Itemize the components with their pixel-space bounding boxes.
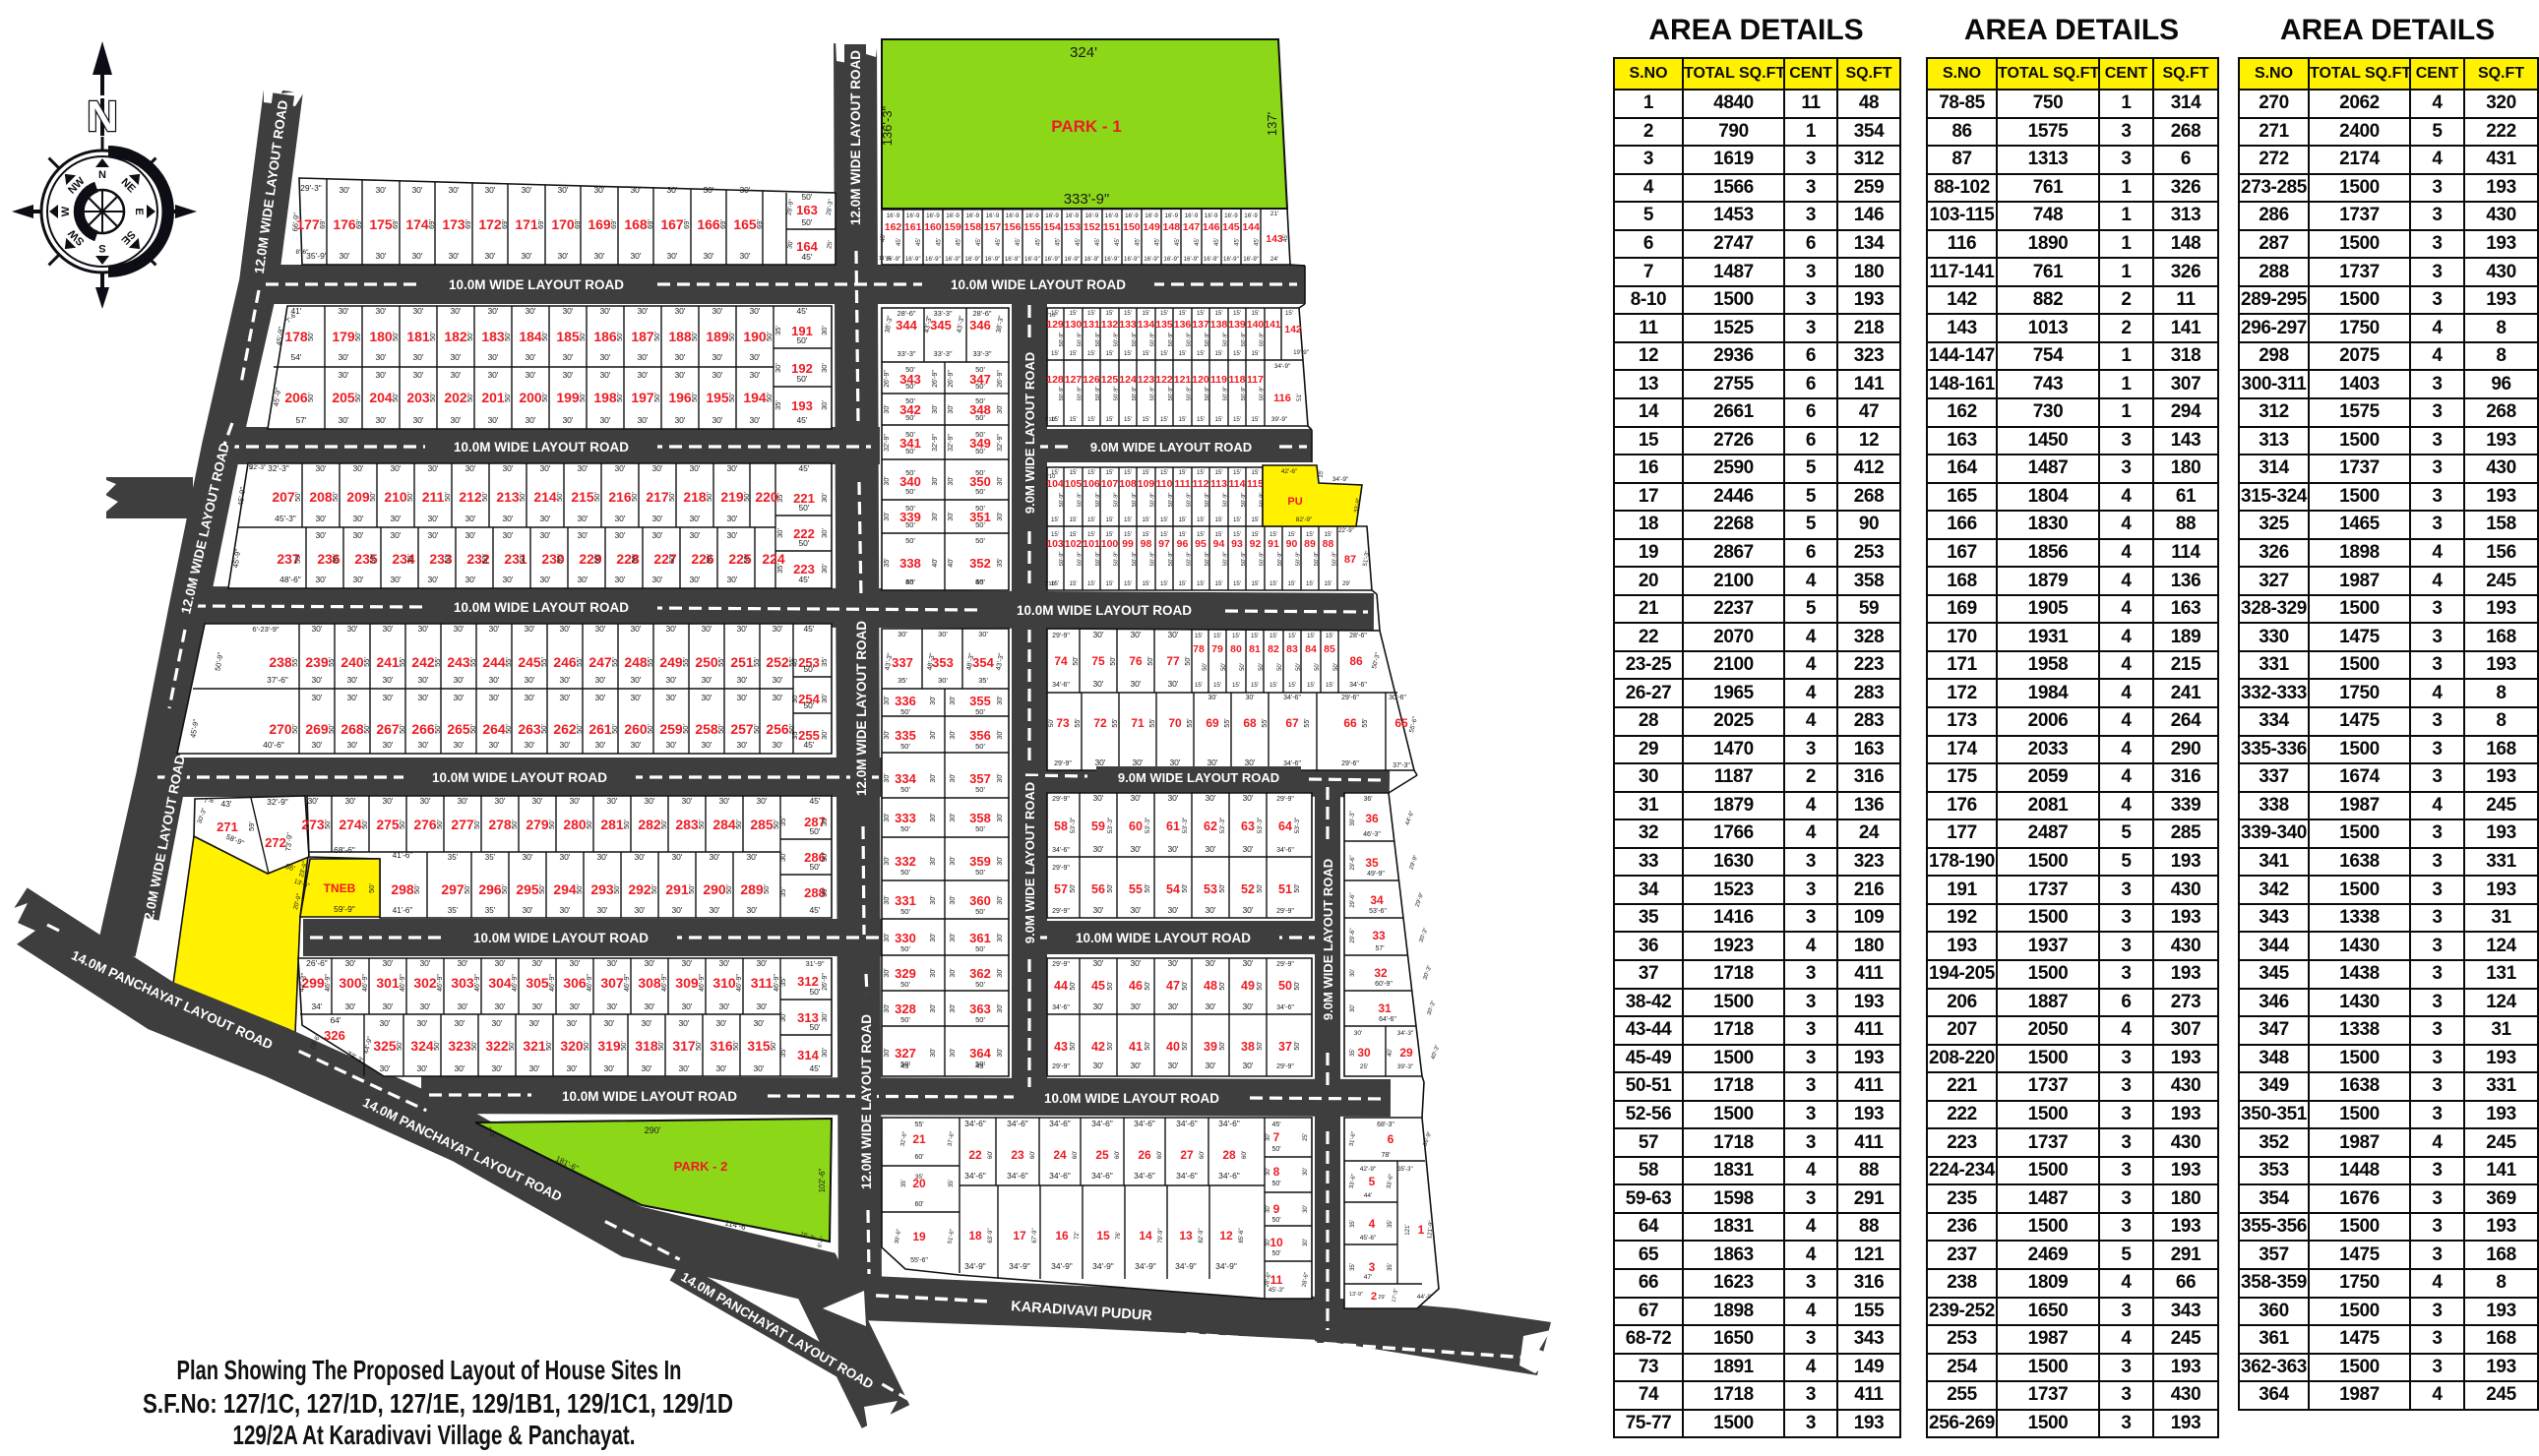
svg-text:112: 112 xyxy=(1193,478,1209,490)
svg-text:50': 50' xyxy=(900,707,910,716)
svg-text:30': 30' xyxy=(665,675,676,685)
svg-text:50': 50' xyxy=(803,700,814,710)
svg-text:59'-9": 59'-9" xyxy=(334,904,355,914)
svg-text:30': 30' xyxy=(457,958,467,968)
svg-text:6'-23'-9": 6'-23'-9" xyxy=(252,625,279,634)
svg-text:30': 30' xyxy=(1092,1001,1103,1011)
svg-text:26'-6": 26'-6" xyxy=(306,958,328,968)
svg-text:15': 15' xyxy=(1124,469,1132,476)
svg-text:279: 279 xyxy=(526,817,549,832)
svg-text:305: 305 xyxy=(526,975,549,991)
svg-text:29'-6": 29'-6" xyxy=(1341,760,1359,767)
svg-text:282: 282 xyxy=(638,817,661,832)
svg-text:69': 69' xyxy=(573,219,582,229)
svg-text:289: 289 xyxy=(740,881,764,897)
svg-text:78': 78' xyxy=(1381,1152,1390,1159)
svg-text:50'-9": 50'-9" xyxy=(1059,387,1065,401)
svg-text:30': 30' xyxy=(1167,905,1178,915)
svg-text:50': 50' xyxy=(331,492,340,502)
svg-text:50': 50' xyxy=(687,884,696,894)
svg-text:9.0M WIDE LAYOUT ROAD: 9.0M WIDE LAYOUT ROAD xyxy=(1118,770,1279,785)
svg-text:75: 75 xyxy=(1091,654,1105,668)
svg-text:363: 363 xyxy=(969,1001,991,1016)
svg-text:163: 163 xyxy=(796,203,818,217)
svg-text:30': 30' xyxy=(756,1001,767,1011)
svg-text:15': 15' xyxy=(1233,416,1241,423)
svg-text:63: 63 xyxy=(1241,819,1255,833)
svg-text:15': 15' xyxy=(1124,531,1132,538)
svg-text:30': 30' xyxy=(1266,1168,1271,1176)
svg-text:30': 30' xyxy=(950,1048,957,1057)
svg-text:16'-9": 16'-9" xyxy=(985,256,1001,263)
svg-text:46'-9": 46'-9" xyxy=(661,974,668,992)
svg-text:30': 30' xyxy=(997,1048,1004,1057)
svg-text:10.0M WIDE LAYOUT ROAD: 10.0M WIDE LAYOUT ROAD xyxy=(449,277,624,292)
svg-text:35': 35' xyxy=(448,853,459,862)
svg-text:60': 60' xyxy=(914,1154,923,1161)
svg-text:30': 30' xyxy=(453,693,464,702)
svg-text:259: 259 xyxy=(659,721,683,737)
svg-text:50'-9": 50'-9" xyxy=(1132,387,1138,401)
svg-text:12.0M WIDE LAYOUT ROAD: 12.0M WIDE LAYOUT ROAD xyxy=(848,50,863,225)
svg-text:26: 26 xyxy=(1138,1148,1151,1162)
svg-text:60': 60' xyxy=(1241,1151,1248,1159)
svg-text:50': 50' xyxy=(905,487,915,496)
svg-text:50'-9": 50'-9" xyxy=(1114,333,1120,347)
svg-text:50': 50' xyxy=(469,1041,478,1051)
svg-text:50'-9": 50'-9" xyxy=(1114,387,1120,401)
svg-text:302: 302 xyxy=(413,975,437,991)
svg-text:15': 15' xyxy=(1124,350,1132,357)
svg-text:30': 30' xyxy=(820,852,829,862)
svg-text:50'-9": 50'-9" xyxy=(1078,552,1084,567)
svg-text:15': 15' xyxy=(1251,633,1259,639)
svg-text:45': 45' xyxy=(809,796,820,806)
svg-text:265: 265 xyxy=(447,721,470,737)
svg-text:63'-9": 63'-9" xyxy=(988,1228,994,1243)
svg-text:69': 69' xyxy=(427,219,436,229)
svg-text:50': 50' xyxy=(1221,663,1227,671)
svg-text:55': 55' xyxy=(1187,718,1194,727)
svg-text:30': 30' xyxy=(522,852,532,862)
svg-text:30': 30' xyxy=(339,251,349,261)
svg-text:50'-9": 50'-9" xyxy=(1059,333,1065,347)
svg-text:30': 30' xyxy=(1167,958,1178,968)
svg-text:30': 30' xyxy=(494,958,505,968)
svg-text:29'-6": 29'-6" xyxy=(1350,928,1356,942)
svg-text:34'-6": 34'-6" xyxy=(1052,847,1070,854)
svg-text:60'-9": 60'-9" xyxy=(1375,981,1393,988)
svg-text:134: 134 xyxy=(1138,319,1155,331)
svg-text:30': 30' xyxy=(1242,905,1253,915)
svg-text:108: 108 xyxy=(1119,478,1137,490)
svg-text:30': 30' xyxy=(562,306,573,316)
svg-text:50': 50' xyxy=(1271,1146,1280,1153)
svg-text:140: 140 xyxy=(1247,319,1265,331)
svg-text:139: 139 xyxy=(1228,319,1246,331)
svg-text:36': 36' xyxy=(1363,796,1372,803)
svg-text:30': 30' xyxy=(453,675,464,685)
svg-text:30': 30' xyxy=(630,624,641,634)
svg-text:15': 15' xyxy=(1324,580,1331,587)
svg-text:50': 50' xyxy=(1257,1041,1264,1050)
svg-text:30': 30' xyxy=(522,905,532,915)
svg-text:15': 15' xyxy=(1160,350,1168,357)
svg-text:33: 33 xyxy=(1372,929,1386,942)
svg-text:45': 45' xyxy=(900,1062,910,1070)
svg-text:30': 30' xyxy=(746,852,757,862)
svg-text:35': 35' xyxy=(778,977,787,987)
svg-text:30': 30' xyxy=(569,1001,580,1011)
svg-text:64': 64' xyxy=(330,1015,341,1025)
svg-text:120: 120 xyxy=(1192,374,1209,386)
svg-text:30': 30' xyxy=(930,1048,937,1057)
svg-text:37: 37 xyxy=(1278,1040,1292,1054)
svg-text:50': 50' xyxy=(1182,981,1189,990)
svg-text:128: 128 xyxy=(1046,374,1064,386)
svg-text:39'-9": 39'-9" xyxy=(1271,416,1288,423)
svg-text:249: 249 xyxy=(659,654,683,670)
svg-text:30': 30' xyxy=(997,730,1004,739)
svg-text:N: N xyxy=(98,169,106,181)
svg-text:30': 30' xyxy=(701,624,712,634)
svg-text:30': 30' xyxy=(382,624,393,634)
svg-text:45': 45' xyxy=(1254,238,1261,246)
svg-text:30': 30' xyxy=(594,624,605,634)
svg-text:33'-3": 33'-3" xyxy=(933,309,952,318)
svg-text:30': 30' xyxy=(665,624,676,634)
svg-text:15': 15' xyxy=(1087,531,1095,538)
svg-text:88: 88 xyxy=(1323,538,1334,550)
svg-text:30': 30' xyxy=(450,370,461,380)
svg-text:16'-9: 16'-9 xyxy=(1105,212,1119,219)
svg-text:50': 50' xyxy=(1257,883,1264,892)
svg-text:50': 50' xyxy=(465,393,474,402)
svg-text:30': 30' xyxy=(603,1063,614,1073)
svg-text:50': 50' xyxy=(575,724,584,734)
svg-text:71: 71 xyxy=(1131,716,1145,730)
svg-text:11'-6: 11'-6 xyxy=(879,256,891,262)
svg-text:30': 30' xyxy=(726,463,737,473)
svg-text:50': 50' xyxy=(612,884,621,894)
svg-text:30': 30' xyxy=(566,1018,577,1028)
svg-text:15': 15' xyxy=(1160,416,1168,423)
svg-text:50: 50 xyxy=(1278,979,1292,993)
svg-text:50': 50' xyxy=(518,554,526,564)
svg-text:34'-9": 34'-9" xyxy=(1215,1261,1237,1271)
svg-text:50': 50' xyxy=(507,1041,516,1051)
svg-text:118: 118 xyxy=(1229,374,1246,386)
svg-text:45': 45' xyxy=(1134,238,1141,246)
svg-text:50': 50' xyxy=(975,868,985,877)
svg-text:9: 9 xyxy=(1273,1202,1280,1216)
svg-text:15': 15' xyxy=(1105,469,1113,476)
svg-text:50': 50' xyxy=(592,554,601,564)
svg-text:30': 30' xyxy=(448,251,459,261)
svg-text:50'-9": 50'-9" xyxy=(1095,493,1101,508)
svg-text:30': 30' xyxy=(1092,905,1103,915)
svg-text:50': 50' xyxy=(293,554,302,564)
svg-text:45'-6": 45'-6" xyxy=(1360,1235,1377,1242)
svg-text:30': 30' xyxy=(703,251,713,261)
svg-text:35': 35' xyxy=(778,817,787,826)
svg-text:55': 55' xyxy=(575,657,584,667)
svg-text:16'-9": 16'-9" xyxy=(1024,256,1040,263)
svg-text:335: 335 xyxy=(895,728,916,743)
svg-text:73: 73 xyxy=(1056,716,1070,730)
svg-text:30': 30' xyxy=(614,575,625,584)
svg-text:30': 30' xyxy=(1207,758,1217,767)
svg-text:156: 156 xyxy=(1004,221,1022,233)
svg-text:50': 50' xyxy=(368,492,377,502)
svg-text:30': 30' xyxy=(671,852,682,862)
svg-text:50': 50' xyxy=(905,536,915,545)
svg-text:30': 30' xyxy=(674,415,685,425)
svg-text:29'-9": 29'-9" xyxy=(1276,961,1294,968)
svg-text:30': 30' xyxy=(1266,1133,1271,1141)
svg-text:50': 50' xyxy=(796,374,807,384)
svg-text:15': 15' xyxy=(1142,350,1149,357)
svg-text:168: 168 xyxy=(624,216,648,232)
svg-text:16'-9: 16'-9 xyxy=(926,212,940,219)
svg-text:28: 28 xyxy=(1222,1148,1236,1162)
svg-text:46'-9": 46'-9" xyxy=(362,974,369,992)
svg-text:30': 30' xyxy=(884,813,891,821)
svg-text:33'-3": 33'-3" xyxy=(897,349,915,358)
svg-text:50': 50' xyxy=(555,554,564,564)
svg-text:30': 30' xyxy=(772,675,782,685)
svg-text:151: 151 xyxy=(1103,221,1121,233)
svg-text:200: 200 xyxy=(519,390,542,405)
svg-text:17: 17 xyxy=(1013,1229,1026,1243)
svg-text:204: 204 xyxy=(369,390,393,405)
svg-text:333: 333 xyxy=(895,811,916,825)
svg-text:50': 50' xyxy=(615,393,624,402)
svg-text:50'-9": 50'-9" xyxy=(1205,493,1210,508)
svg-text:202: 202 xyxy=(444,390,467,405)
svg-text:315: 315 xyxy=(747,1038,771,1054)
svg-text:30': 30' xyxy=(491,1063,502,1073)
svg-text:189: 189 xyxy=(706,329,729,344)
svg-text:50': 50' xyxy=(1070,981,1077,990)
svg-text:15': 15' xyxy=(1160,531,1168,538)
svg-text:82'-9": 82'-9" xyxy=(1296,516,1313,523)
svg-text:50': 50' xyxy=(900,944,910,953)
svg-text:53'-6": 53'-6" xyxy=(1369,908,1387,915)
svg-text:50'-9": 50'-9" xyxy=(1241,552,1247,567)
svg-text:30': 30' xyxy=(820,1048,829,1058)
svg-text:50': 50' xyxy=(1271,1217,1280,1224)
svg-text:15': 15' xyxy=(1233,350,1241,357)
svg-text:30': 30' xyxy=(339,185,349,195)
svg-text:55': 55' xyxy=(610,657,619,667)
svg-text:30': 30' xyxy=(749,415,760,425)
svg-text:30': 30' xyxy=(1130,630,1141,639)
svg-text:30': 30' xyxy=(338,415,348,425)
svg-text:30': 30' xyxy=(950,968,957,977)
svg-text:55': 55' xyxy=(1075,718,1082,727)
svg-text:34: 34 xyxy=(1370,893,1384,907)
svg-text:35': 35' xyxy=(775,493,784,503)
svg-text:50': 50' xyxy=(975,520,985,529)
svg-text:30': 30' xyxy=(1205,1001,1215,1011)
svg-text:15': 15' xyxy=(1142,469,1149,476)
svg-text:46'-9": 46'-9" xyxy=(325,974,332,992)
svg-text:30': 30' xyxy=(525,370,535,380)
svg-text:34'-6": 34'-6" xyxy=(1176,1119,1198,1128)
svg-text:30': 30' xyxy=(820,564,829,574)
svg-text:25': 25' xyxy=(1303,1133,1309,1141)
svg-text:30': 30' xyxy=(820,493,829,503)
svg-text:29'-6": 29'-6" xyxy=(1350,892,1356,907)
svg-text:30': 30' xyxy=(726,514,737,523)
svg-text:30': 30' xyxy=(417,693,428,702)
svg-text:50': 50' xyxy=(510,819,519,829)
svg-text:30': 30' xyxy=(1130,1061,1141,1070)
svg-text:364: 364 xyxy=(969,1046,991,1061)
svg-text:30': 30' xyxy=(1242,1001,1253,1011)
svg-text:30': 30' xyxy=(665,740,676,750)
svg-text:30': 30' xyxy=(614,530,625,540)
svg-text:77: 77 xyxy=(1166,654,1180,668)
svg-text:129: 129 xyxy=(1046,319,1064,331)
svg-text:50': 50' xyxy=(742,492,751,502)
svg-text:30': 30' xyxy=(539,575,550,584)
svg-text:30': 30' xyxy=(997,1003,1004,1012)
svg-text:18: 18 xyxy=(968,1229,982,1243)
svg-text:30': 30' xyxy=(614,514,625,523)
svg-text:30': 30' xyxy=(749,370,760,380)
svg-text:55': 55' xyxy=(646,657,654,667)
svg-text:32'-9": 32'-9" xyxy=(884,434,891,452)
svg-text:87: 87 xyxy=(1344,554,1356,566)
svg-text:81: 81 xyxy=(1249,643,1261,655)
svg-text:50': 50' xyxy=(1145,981,1151,990)
svg-text:16'-9: 16'-9 xyxy=(1244,212,1258,219)
svg-text:35': 35' xyxy=(915,1174,923,1181)
svg-text:30': 30' xyxy=(938,676,948,685)
svg-text:37'-3": 37'-3" xyxy=(1393,762,1410,769)
svg-text:358: 358 xyxy=(969,811,991,825)
svg-text:50': 50' xyxy=(1107,883,1114,892)
svg-text:25': 25' xyxy=(1360,1063,1368,1070)
svg-text:30': 30' xyxy=(450,306,461,316)
svg-text:35': 35' xyxy=(448,906,459,915)
svg-text:30': 30' xyxy=(1354,1030,1362,1037)
svg-text:206: 206 xyxy=(284,390,308,405)
svg-text:50': 50' xyxy=(975,430,985,439)
svg-text:47': 47' xyxy=(1364,1274,1372,1281)
svg-text:15': 15' xyxy=(1051,350,1059,357)
svg-text:50': 50' xyxy=(905,520,915,529)
svg-text:50': 50' xyxy=(667,554,676,564)
svg-text:160: 160 xyxy=(924,221,942,233)
svg-text:16'-9: 16'-9 xyxy=(1145,212,1158,219)
svg-text:45': 45' xyxy=(975,1062,985,1070)
svg-text:34'-9": 34'-9" xyxy=(1135,1261,1156,1271)
svg-text:15': 15' xyxy=(1197,580,1205,587)
svg-text:30': 30' xyxy=(898,630,907,638)
svg-text:60': 60' xyxy=(1029,1151,1036,1159)
svg-text:30': 30' xyxy=(488,624,499,634)
svg-text:39: 39 xyxy=(1204,1040,1217,1054)
svg-text:179: 179 xyxy=(332,329,355,344)
svg-text:240: 240 xyxy=(341,654,364,670)
svg-text:320: 320 xyxy=(560,1038,584,1054)
svg-text:34'-9": 34'-9" xyxy=(1274,363,1291,370)
svg-text:167: 167 xyxy=(660,216,684,232)
svg-text:30': 30' xyxy=(464,514,475,523)
svg-text:55': 55' xyxy=(398,657,406,667)
svg-text:30': 30' xyxy=(531,958,542,968)
svg-text:29'-6": 29'-6" xyxy=(1350,855,1356,870)
svg-text:25': 25' xyxy=(826,240,834,250)
svg-text:34'-6": 34'-6" xyxy=(1052,682,1070,689)
svg-text:30': 30' xyxy=(930,968,937,977)
svg-text:50': 50' xyxy=(809,826,820,836)
svg-text:4: 4 xyxy=(1369,1217,1376,1231)
svg-text:50': 50' xyxy=(480,492,489,502)
svg-text:30': 30' xyxy=(346,675,357,685)
svg-text:142: 142 xyxy=(1284,324,1302,335)
svg-text:115: 115 xyxy=(1247,478,1264,490)
svg-text:30': 30' xyxy=(786,240,794,250)
svg-text:85'-6": 85'-6" xyxy=(1239,1228,1245,1243)
svg-text:30': 30' xyxy=(930,933,937,941)
svg-text:16'-9: 16'-9 xyxy=(1185,212,1199,219)
svg-text:55: 55 xyxy=(1129,882,1143,896)
svg-text:15': 15' xyxy=(1307,633,1315,639)
svg-text:30': 30' xyxy=(1167,844,1178,854)
svg-text:50': 50' xyxy=(539,724,548,734)
svg-text:35': 35' xyxy=(901,1180,907,1187)
svg-text:42'-6": 42'-6" xyxy=(1281,468,1298,475)
svg-text:30': 30' xyxy=(1132,758,1143,767)
svg-text:362: 362 xyxy=(969,966,991,981)
svg-text:34'-6": 34'-6" xyxy=(1007,1171,1028,1181)
svg-text:30': 30' xyxy=(749,306,760,316)
svg-text:50': 50' xyxy=(544,1041,553,1051)
svg-text:34'-6": 34'-6" xyxy=(1052,1004,1070,1011)
svg-text:45': 45' xyxy=(809,905,820,915)
svg-text:35': 35' xyxy=(774,326,782,335)
svg-text:50'-9": 50'-9" xyxy=(1150,552,1156,567)
svg-text:50': 50' xyxy=(659,819,668,829)
svg-text:30': 30' xyxy=(701,740,712,750)
svg-text:317: 317 xyxy=(672,1038,696,1054)
svg-text:34'-6": 34'-6" xyxy=(1276,847,1294,854)
svg-text:211: 211 xyxy=(422,489,445,505)
svg-text:60': 60' xyxy=(1199,1151,1206,1159)
svg-text:147: 147 xyxy=(1183,221,1201,233)
svg-text:40': 40' xyxy=(880,234,887,242)
svg-text:50': 50' xyxy=(975,504,985,513)
svg-text:15': 15' xyxy=(1069,416,1077,423)
svg-text:32'-9": 32'-9" xyxy=(267,797,288,807)
svg-text:30': 30' xyxy=(715,1018,726,1028)
svg-text:16'-9: 16'-9 xyxy=(906,212,920,219)
svg-text:68: 68 xyxy=(1243,716,1257,730)
svg-text:50': 50' xyxy=(630,554,639,564)
svg-text:30': 30' xyxy=(453,624,464,634)
svg-text:208: 208 xyxy=(309,489,333,505)
svg-text:50'-9": 50'-9" xyxy=(1205,387,1210,401)
svg-text:30': 30' xyxy=(997,933,1004,941)
svg-text:50': 50' xyxy=(472,819,481,829)
svg-text:103: 103 xyxy=(1046,538,1064,550)
svg-text:55': 55' xyxy=(1112,718,1119,727)
svg-text:50': 50' xyxy=(480,554,489,564)
